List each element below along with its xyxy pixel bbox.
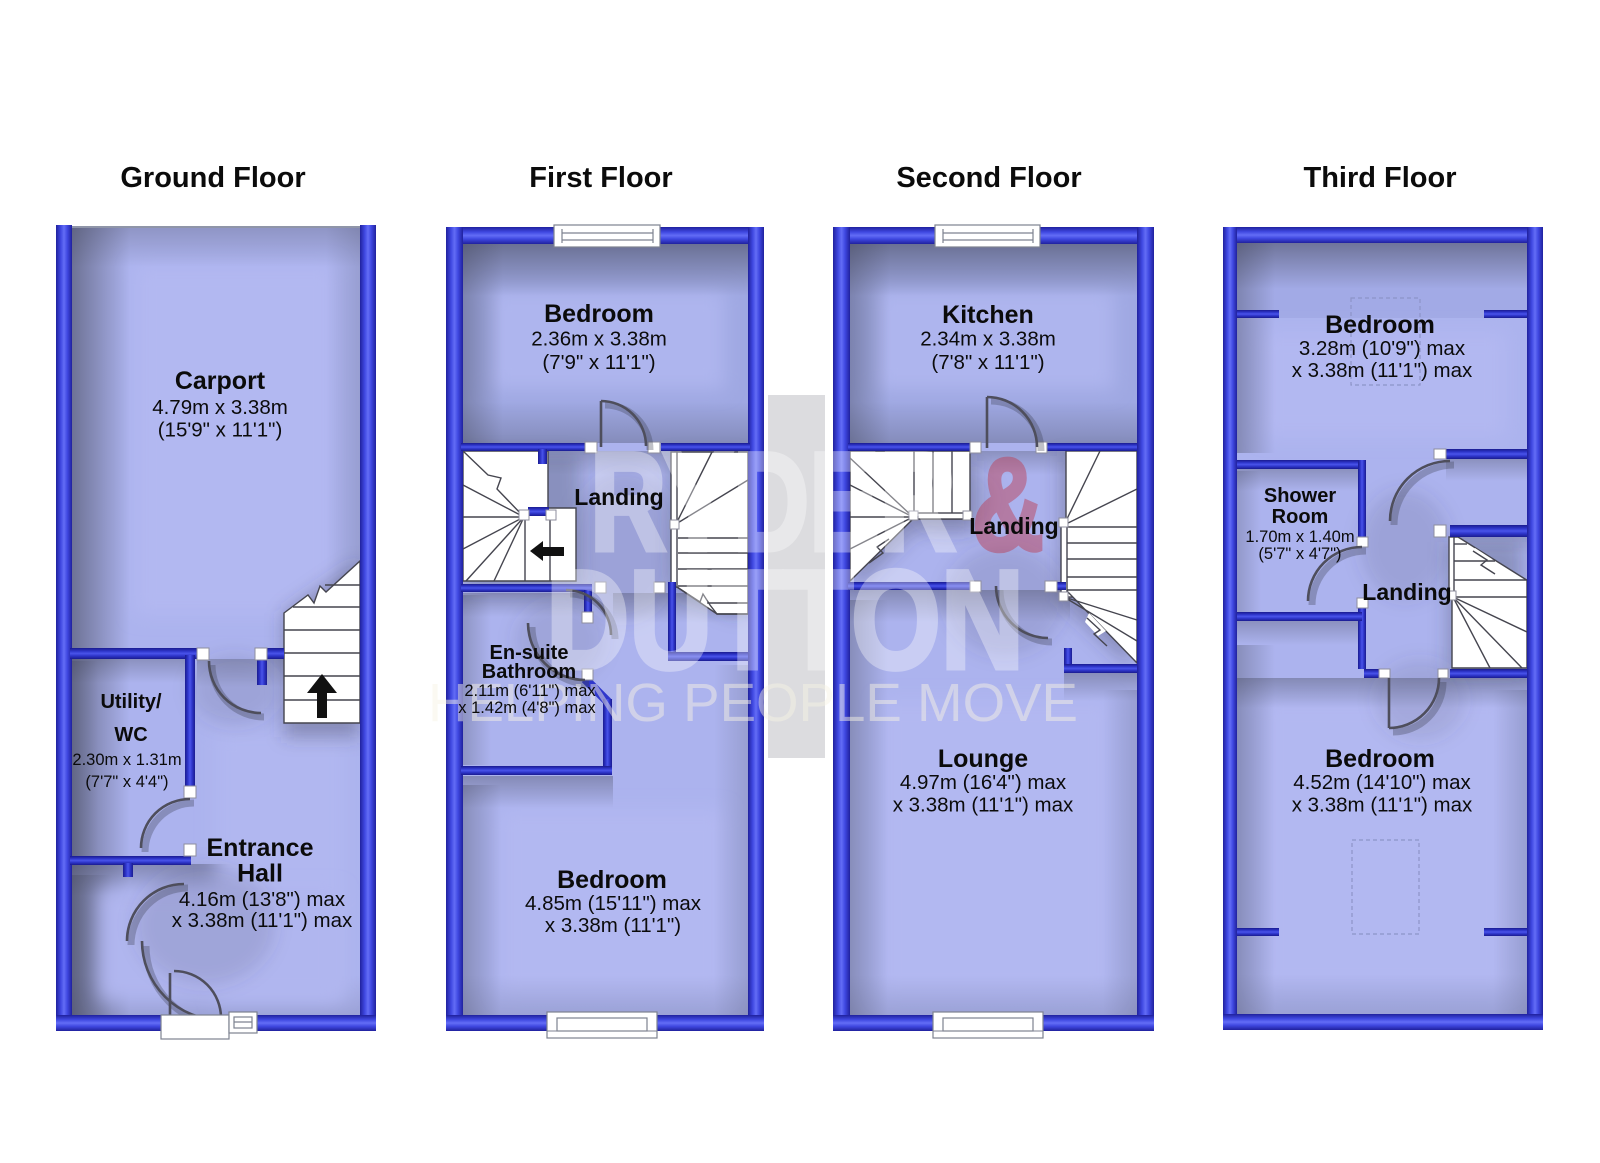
svg-text:4.52m (14'10") max: 4.52m (14'10") max xyxy=(1293,771,1471,794)
svg-text:Landing: Landing xyxy=(574,484,663,510)
svg-text:x 3.38m (11'1") max: x 3.38m (11'1") max xyxy=(1292,794,1473,817)
svg-text:(7'8" x 11'1"): (7'8" x 11'1") xyxy=(931,351,1044,374)
svg-text:Bedroom: Bedroom xyxy=(544,300,654,328)
svg-text:Third Floor: Third Floor xyxy=(1303,162,1456,194)
svg-text:x 3.38m (11'1") max: x 3.38m (11'1") max xyxy=(893,794,1074,817)
svg-text:x 3.38m (11'1") max: x 3.38m (11'1") max xyxy=(172,909,353,932)
svg-text:Bedroom: Bedroom xyxy=(1325,745,1435,773)
svg-text:3.28m (10'9") max: 3.28m (10'9") max xyxy=(1299,337,1466,360)
svg-text:Bedroom: Bedroom xyxy=(1325,311,1435,339)
svg-text:1.70m x 1.40m: 1.70m x 1.40m xyxy=(1245,528,1354,546)
svg-text:4.85m (15'11") max: 4.85m (15'11") max xyxy=(525,892,702,915)
svg-text:x 1.42m (4'8") max: x 1.42m (4'8") max xyxy=(458,699,596,717)
svg-text:4.97m (16'4") max: 4.97m (16'4") max xyxy=(900,771,1067,794)
svg-text:x 3.38m (11'1"): x 3.38m (11'1") xyxy=(545,914,681,937)
svg-text:Utility/: Utility/ xyxy=(100,691,162,713)
svg-text:2.30m x 1.31m: 2.30m x 1.31m xyxy=(72,751,181,769)
svg-text:Lounge: Lounge xyxy=(938,745,1028,773)
svg-text:Landing: Landing xyxy=(969,513,1058,539)
svg-text:Ground Floor: Ground Floor xyxy=(120,162,305,194)
svg-text:Bathroom: Bathroom xyxy=(482,661,576,683)
svg-text:Room: Room xyxy=(1272,506,1329,528)
svg-text:Bedroom: Bedroom xyxy=(557,866,667,894)
svg-text:(15'9" x 11'1"): (15'9" x 11'1") xyxy=(158,419,283,442)
svg-text:2.36m x 3.38m: 2.36m x 3.38m xyxy=(531,328,667,351)
svg-text:(7'9" x 11'1"): (7'9" x 11'1") xyxy=(542,351,655,374)
svg-text:Shower: Shower xyxy=(1264,485,1336,507)
svg-text:Second Floor: Second Floor xyxy=(896,162,1081,194)
svg-text:(7'7" x 4'4"): (7'7" x 4'4") xyxy=(85,773,168,791)
svg-text:2.34m x 3.38m: 2.34m x 3.38m xyxy=(920,328,1056,351)
svg-text:4.79m x 3.38m: 4.79m x 3.38m xyxy=(152,396,288,419)
svg-text:Landing: Landing xyxy=(1362,579,1451,605)
svg-text:4.16m (13'8") max: 4.16m (13'8") max xyxy=(179,888,346,911)
svg-text:x 3.38m (11'1") max: x 3.38m (11'1") max xyxy=(1292,359,1473,382)
svg-text:(5'7" x 4'7"): (5'7" x 4'7") xyxy=(1258,545,1341,563)
svg-text:WC: WC xyxy=(114,724,147,746)
svg-text:Hall: Hall xyxy=(237,860,283,888)
svg-text:Carport: Carport xyxy=(175,367,266,395)
svg-text:Kitchen: Kitchen xyxy=(942,301,1034,329)
svg-text:2.11m (6'11") max: 2.11m (6'11") max xyxy=(464,682,596,700)
svg-text:Entrance: Entrance xyxy=(207,834,314,862)
svg-text:First Floor: First Floor xyxy=(529,162,672,194)
